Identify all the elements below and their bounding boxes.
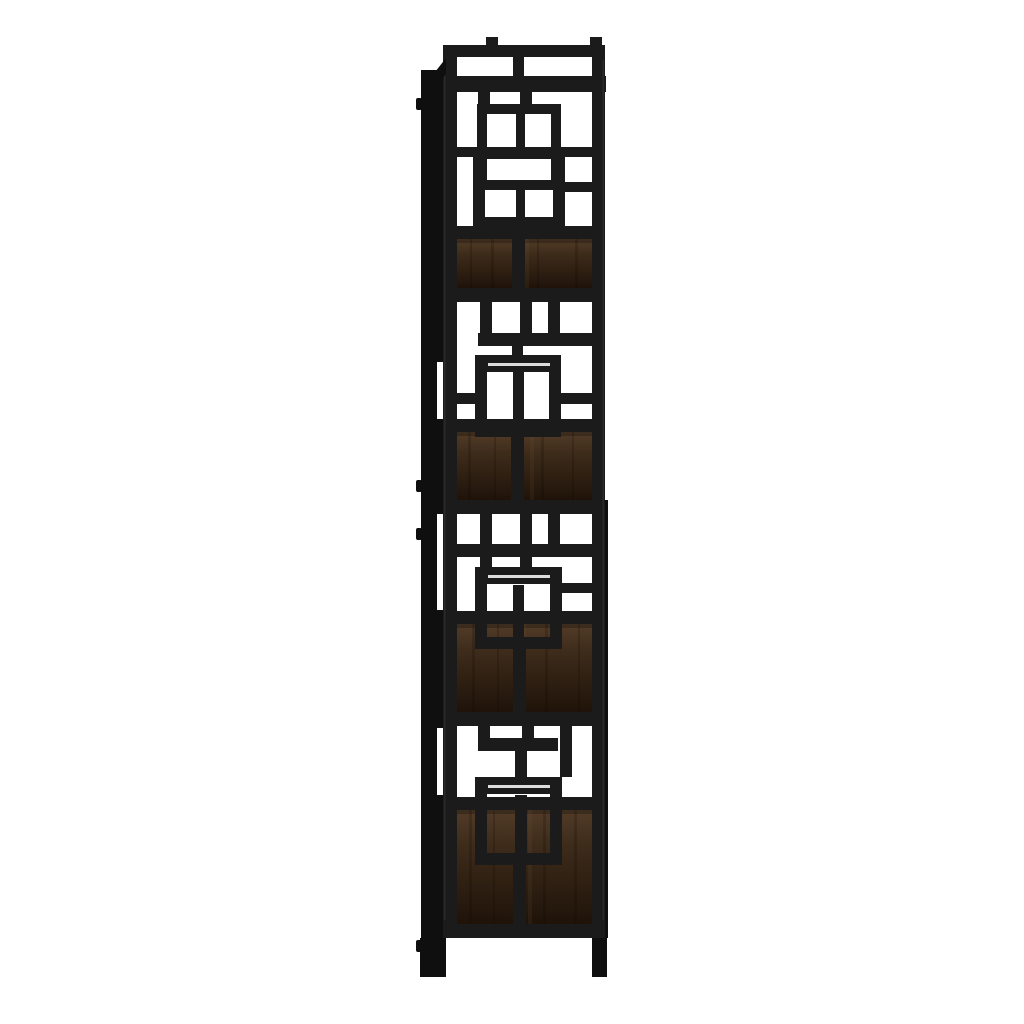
mullion [515,751,527,777]
second-rail [436,76,606,92]
cross-bar [478,333,605,346]
big-square-slit [489,161,549,164]
gallery-mullion [513,55,524,78]
mullion [478,726,490,740]
divider [513,372,524,425]
big-square-slit [488,785,550,788]
cross-bar [478,738,558,751]
rear-post [421,70,443,938]
shelf-mullion [512,223,525,288]
depth-gap [437,728,443,795]
divider [516,109,525,153]
mullion [560,726,572,777]
mullion [522,726,534,740]
product-photo-canvas [0,0,1024,1024]
mullion [548,514,560,546]
mullion [548,302,560,335]
mullion [520,514,532,546]
depth-gap [437,514,443,610]
hinge-pin [416,98,422,110]
shelf-mullion [513,859,526,924]
rear-stile-depth-edge [605,500,608,938]
mullion [520,302,532,335]
right-leg [592,938,607,977]
shelf-support-rail [443,797,605,810]
section-bottom-rail [443,712,605,726]
bookcase-side-photo [0,0,1024,1024]
depth-gap [437,362,443,419]
mullion [520,92,532,106]
divider [516,190,525,222]
section-bottom-rail [443,500,605,514]
shelf-mullion [513,643,526,712]
stile-highlight [444,60,446,920]
bottom-rail [443,924,605,938]
left-leg [420,938,446,977]
mullion [478,92,490,106]
shelf-2 [457,432,592,500]
top-rail [444,45,605,57]
big-square-slit [488,575,550,578]
shelf-mullion [511,425,524,500]
mullion [480,514,492,546]
shelf-board [457,432,592,500]
mullion [480,302,492,335]
stile-highlight [603,60,605,920]
cross-bar [443,544,605,557]
hinge-pin [416,528,422,540]
section-bottom-rail [443,288,605,302]
hinge-pin [416,480,422,492]
shelf-support-rail [443,611,605,624]
big-square-slit [488,363,550,366]
